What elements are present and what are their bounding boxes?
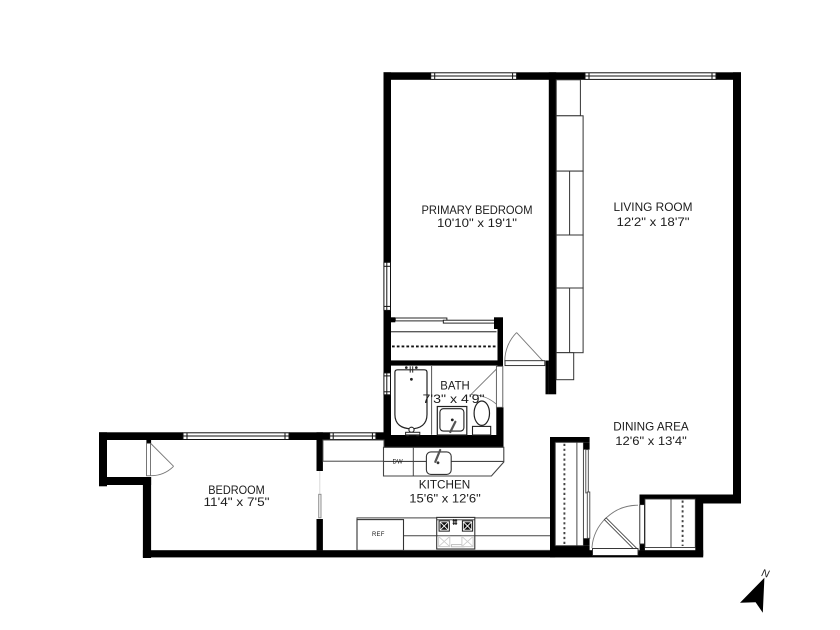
svg-text:10'10" x 19'1": 10'10" x 19'1" [437,216,517,230]
svg-text:12'6" x 13'4": 12'6" x 13'4" [615,434,687,448]
svg-text:LIVING ROOM: LIVING ROOM [614,200,693,214]
svg-text:KITCHEN: KITCHEN [419,477,471,491]
svg-text:PRIMARY BEDROOM: PRIMARY BEDROOM [422,203,533,217]
svg-text:BATH: BATH [440,378,470,392]
svg-text:REF: REF [372,532,385,538]
svg-text:7'3" x 4'9": 7'3" x 4'9" [423,392,485,406]
svg-text:12'2" x 18'7": 12'2" x 18'7" [617,215,690,229]
svg-text:11'4" x 7'5": 11'4" x 7'5" [204,495,270,509]
svg-text:DW: DW [393,460,404,466]
svg-text:15'6" x 12'6": 15'6" x 12'6" [409,491,481,505]
svg-text:DINING AREA: DINING AREA [613,420,689,434]
